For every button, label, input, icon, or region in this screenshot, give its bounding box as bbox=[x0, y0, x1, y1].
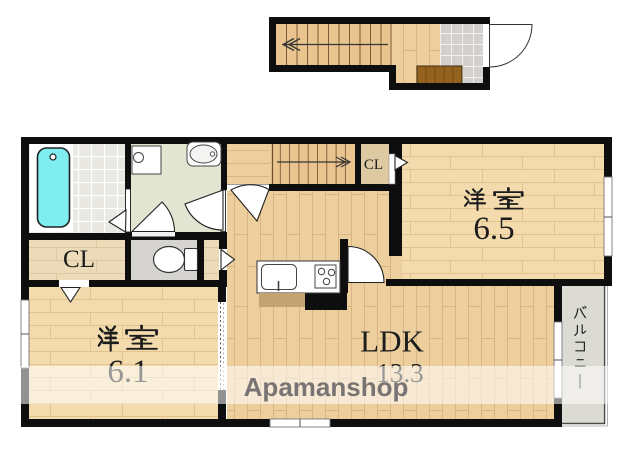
svg-text:6.5: 6.5 bbox=[473, 211, 514, 247]
svg-text:CL: CL bbox=[364, 157, 383, 173]
svg-text:LDK: LDK bbox=[360, 324, 424, 359]
svg-text:Apamanshop: Apamanshop bbox=[244, 372, 409, 402]
svg-text:CL: CL bbox=[63, 246, 95, 273]
